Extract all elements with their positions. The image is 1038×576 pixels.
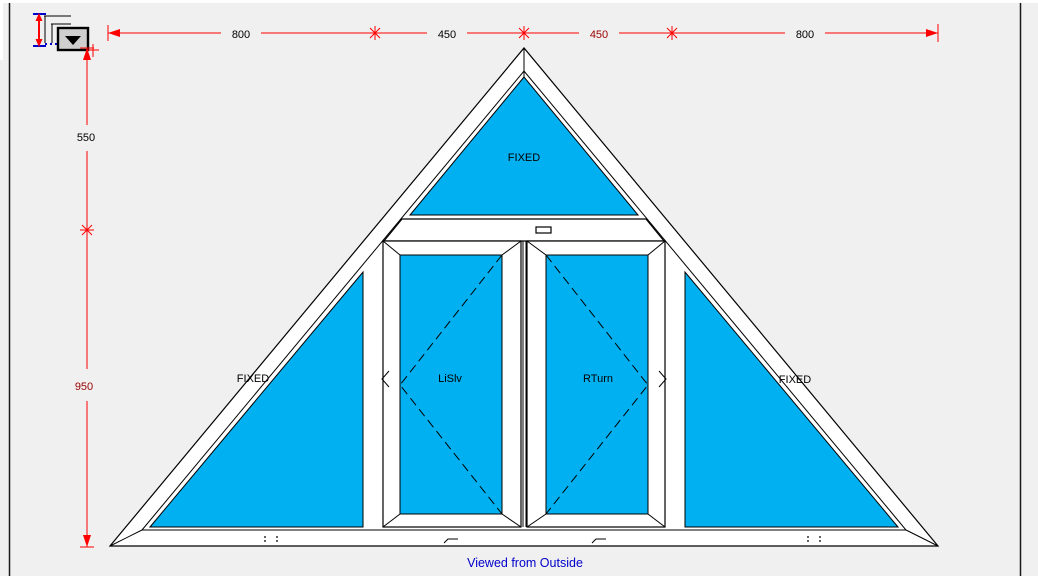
transom-bar[interactable] [384, 219, 664, 241]
dim-label-800-left[interactable]: 800 [232, 29, 250, 41]
top-dim-left-arrow [108, 29, 120, 37]
pane-label-right: FIXED [779, 374, 811, 386]
dimension-tool-icon [33, 13, 99, 57]
dim-label-550[interactable]: 550 [77, 132, 95, 144]
pane-label-apex: FIXED [508, 152, 540, 164]
pane-label-sash-right: RTurn [583, 373, 613, 385]
dim-label-800-right[interactable]: 800 [796, 29, 814, 41]
pane-label-sash-left: LiSlv [438, 373, 462, 385]
top-dimension-line: 800 450 450 800 [108, 24, 938, 42]
left-dimension-line: 550 950 [75, 48, 95, 547]
glass-pane-left[interactable] [150, 272, 363, 527]
dim-label-950[interactable]: 950 [75, 381, 93, 393]
left-dim-bottom-arrow [83, 535, 91, 547]
pane-label-left: FIXED [237, 373, 269, 385]
dim-label-450-right[interactable]: 450 [590, 29, 608, 41]
transom-latch [536, 227, 551, 233]
drawing-area: 800 450 450 800 550 950 [0, 0, 1038, 576]
window-drawing: FIXED FIXED LiSlv RTurn FIXED [110, 48, 938, 546]
top-dim-right-arrow [926, 29, 938, 37]
canvas-top-highlight [0, 0, 1038, 3]
glass-pane-right[interactable] [685, 272, 898, 527]
dim-label-450-left[interactable]: 450 [438, 29, 456, 41]
design-canvas: 800 450 450 800 550 950 [0, 0, 1038, 576]
canvas-left-highlight [0, 0, 3, 60]
dimension-dropdown-button[interactable] [58, 28, 88, 50]
view-note: Viewed from Outside [467, 556, 583, 570]
